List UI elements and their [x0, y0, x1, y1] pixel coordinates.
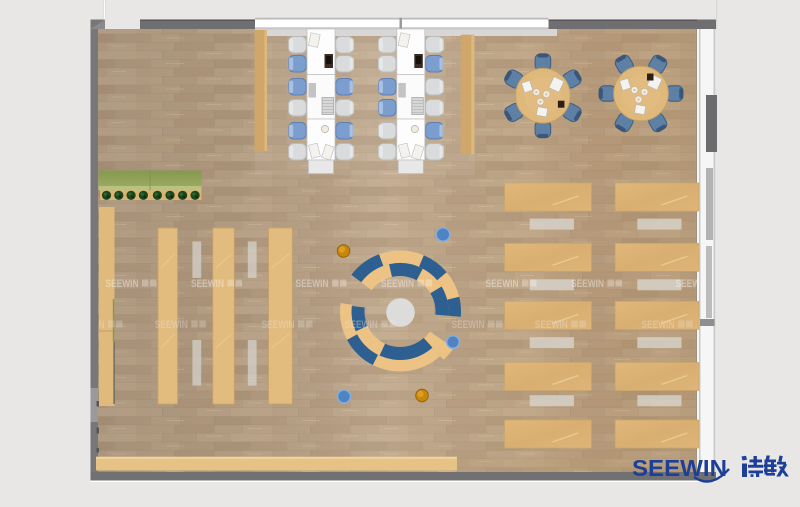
svg-text:SEEWIN: SEEWIN: [155, 319, 188, 331]
svg-text:SEEWIN: SEEWIN: [452, 319, 485, 331]
svg-text:SEEWIN: SEEWIN: [345, 319, 378, 331]
svg-text:SEEWIN: SEEWIN: [632, 455, 727, 481]
svg-text:SEEWIN: SEEWIN: [486, 278, 519, 290]
svg-text:SEEWIN: SEEWIN: [106, 278, 139, 290]
svg-text:SEEWIN: SEEWIN: [642, 319, 675, 331]
svg-text:SEEWIN: SEEWIN: [571, 278, 604, 290]
svg-text:SEEWIN: SEEWIN: [191, 278, 224, 290]
svg-text:SEEWIN: SEEWIN: [535, 319, 568, 331]
svg-text:SEEWIN: SEEWIN: [262, 319, 295, 331]
svg-text:SEEWIN: SEEWIN: [296, 278, 329, 290]
svg-text:SEEWIN: SEEWIN: [381, 278, 414, 290]
